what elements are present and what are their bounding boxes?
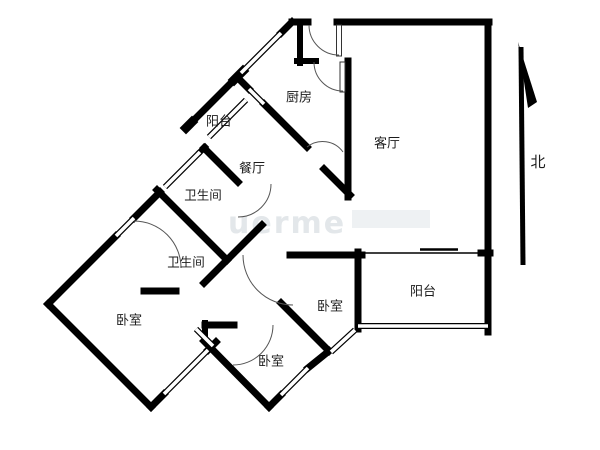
watermark-block	[352, 210, 430, 228]
room-label-bedroom-east: 卧室	[317, 299, 343, 315]
window-kitchen-exterior	[241, 33, 281, 73]
hall-kitchen-door-arc	[307, 142, 343, 152]
wall-bath1-ne	[204, 148, 238, 182]
room-label-bedroom-west: 卧室	[116, 313, 142, 329]
wall-beds-se-1	[269, 395, 281, 407]
north-arrow-shaft	[521, 47, 523, 265]
window-bath1-nw	[165, 152, 200, 187]
wall-kitchen-dining	[264, 104, 307, 147]
room-label-living-room: 客厅	[374, 136, 400, 152]
floor-plan-page: uerme	[0, 0, 600, 450]
room-label-bedroom-south: 卧室	[258, 354, 284, 370]
window-bedw-se	[164, 350, 208, 394]
wall-beds-se-2	[308, 351, 329, 368]
window-bedw-nw	[116, 218, 134, 236]
north-label: 北	[530, 153, 545, 171]
room-label-kitchen: 厨房	[286, 90, 312, 106]
watermark: uerme	[228, 206, 430, 241]
wall-bath2-se	[204, 260, 227, 283]
kitchen-door-arc	[314, 62, 343, 91]
wall-bedw-nw-2	[134, 192, 160, 218]
window-bede-corner	[331, 330, 355, 352]
entry-door-leaf	[337, 25, 342, 56]
room-label-balcony-nw: 阳台	[206, 115, 232, 130]
window-beds-se	[281, 368, 308, 395]
kitchen-door-leaf	[340, 62, 345, 92]
wall-nw-exterior-1	[281, 22, 292, 33]
window-balcony-kitchen	[249, 89, 264, 104]
room-label-balcony-se: 阳台	[410, 285, 436, 300]
entry-door-arc	[309, 25, 339, 55]
floor-plan-svg: uerme	[0, 0, 600, 450]
room-label-bathroom-2: 卫生间	[167, 255, 205, 270]
wall-beds-sw	[204, 341, 269, 407]
wall-bedw-nw-1	[48, 236, 116, 304]
room-label-dining: 餐厅	[239, 161, 265, 177]
wall-bedw-se-1	[151, 394, 164, 407]
bedroom-east-door-arc	[243, 255, 293, 305]
room-label-bathroom-1: 卫生间	[184, 188, 222, 203]
wall-kitchen-balcony-1	[237, 77, 249, 89]
wall-nw-corner-block-2	[186, 122, 192, 128]
watermark-text: uerme	[228, 206, 346, 241]
